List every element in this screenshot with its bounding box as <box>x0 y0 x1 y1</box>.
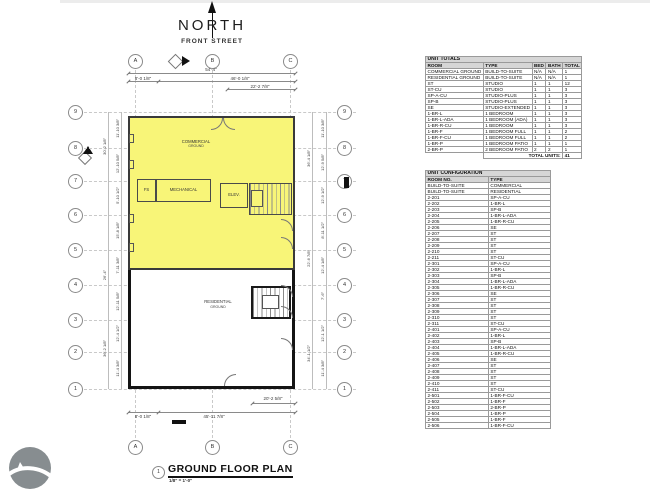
table-cell: 1 BEDROOM (ADA) <box>483 117 532 123</box>
grid-bubble: 6 <box>68 208 83 223</box>
dimension-label: 5'-10 1/2" <box>115 187 120 204</box>
grid-bubble: 5 <box>337 243 352 258</box>
mechanical-room: MECHANICAL <box>156 179 211 202</box>
keynote-marker <box>344 177 349 188</box>
plan-title: GROUND FLOOR PLAN <box>168 463 293 478</box>
dimension-line <box>252 403 295 404</box>
grid-bubble: C <box>283 440 298 455</box>
grid-bubble: 8 <box>337 141 352 156</box>
stair-landing <box>262 295 279 309</box>
wall-pilaster <box>129 160 134 169</box>
residential-room-tag: RESIDENTIAL GROUND <box>196 299 240 310</box>
dimension-line <box>128 73 295 74</box>
dimension-label: 45'-11 7/8" <box>186 414 242 419</box>
grid-bubble: A <box>128 440 143 455</box>
dimension-label: 11'-4 3/8" <box>115 360 120 377</box>
dimension-line <box>108 112 109 389</box>
table-cell: 1 BEDROOM PATIO <box>483 141 532 147</box>
grid-bubble: 1 <box>337 382 352 397</box>
dimension-line <box>128 81 295 82</box>
room-name: ELEV. <box>228 193 240 198</box>
dimension-tick <box>293 410 297 414</box>
drawing-sheet: NORTH FRONT STREET AABBCC998877665544332… <box>0 0 650 488</box>
total-row: TOTAL UNITS:41 <box>426 153 582 159</box>
detail-number-bubble: 1 <box>152 466 165 479</box>
grid-bubble: 2 <box>337 345 352 360</box>
dimension-label: 12'-1 1/2" <box>320 325 325 342</box>
grid-bubble: 4 <box>68 278 83 293</box>
keynote-marker <box>172 420 186 424</box>
grid-bubble: 3 <box>68 313 83 328</box>
grid-line <box>84 112 356 113</box>
grid-bubble: B <box>205 440 220 455</box>
fs-room: FS <box>137 179 156 202</box>
grid-bubble: 1 <box>68 382 83 397</box>
wall-pilaster <box>129 214 134 223</box>
elevator-room: ELEV. <box>220 183 248 208</box>
total-value: 41 <box>563 153 582 159</box>
dimension-line <box>121 112 122 389</box>
dimension-label: 11'-4 3/8" <box>320 360 325 377</box>
grid-bubble: 6 <box>337 208 352 223</box>
dimension-label: 12'-11 5/8" <box>115 292 120 311</box>
grid-bubble: 7 <box>68 174 83 189</box>
total-label: TOTAL UNITS: <box>483 153 562 159</box>
column-header: BATH <box>546 63 563 69</box>
dimension-label: 20'-2 5/8" <box>248 396 298 401</box>
dimension-label: 12'-4 1/2" <box>115 325 120 342</box>
dimension-label: 11'-10 3/8" <box>115 119 120 138</box>
dimension-label: 30'-2 1/8" <box>102 138 107 155</box>
column-header: BED <box>532 63 546 69</box>
dimension-label: 22'-6 7/8" <box>306 250 311 267</box>
dimension-label: 22'-2 7/8" <box>234 84 286 89</box>
dimension-label: 8'-0 1/8" <box>124 414 162 419</box>
dimension-label: 15'-8 1/8" <box>115 222 120 239</box>
grid-bubble: C <box>283 54 298 69</box>
room-sub: GROUND <box>188 144 204 148</box>
dimension-label: 36'-4 1/8" <box>306 150 311 167</box>
dimension-label: 46'-0 1/8" <box>212 76 268 81</box>
table-cell: RESIDENTIAL GROUND <box>426 75 484 81</box>
room-sub: GROUND <box>210 305 226 309</box>
dimension-label: 34'-1 1/2" <box>306 345 311 362</box>
wall-pilaster <box>129 134 134 143</box>
commercial-room-tag: COMMERCIAL GROUND <box>168 138 224 150</box>
grid-bubble: 2 <box>68 345 83 360</box>
unit-totals-table: UNIT TOTALS ROOMTYPEBEDBATHTOTAL COMMERC… <box>425 56 582 159</box>
plan-scale: 1/8" = 1'-0" <box>169 478 192 483</box>
grid-bubble: 4 <box>337 278 352 293</box>
table-cell: STUDIO-EXTENDED <box>483 105 532 111</box>
table-cell: 1 BEDROOM FULL <box>483 129 532 135</box>
dimension-label: 8'-11 1/2" <box>320 222 325 239</box>
dimension-label: 12'-9 1/2" <box>320 187 325 204</box>
room-name: MECHANICAL <box>170 188 197 193</box>
column-header: TOTAL <box>563 63 582 69</box>
dimension-label: 12'-9 5/8" <box>320 154 325 171</box>
table-row: 2-5061-BR-F-CU <box>426 423 551 429</box>
table-cell: 2 BEDROOM PATIO <box>483 147 532 153</box>
grid-bubble: 5 <box>68 243 83 258</box>
dimension-line <box>312 112 313 389</box>
dimension-label: 11'-10 3/8" <box>320 119 325 138</box>
dimension-tick <box>293 401 297 405</box>
dimension-tick <box>293 79 297 83</box>
dimension-label: 7'-6" <box>320 292 325 300</box>
grid-line <box>84 389 356 390</box>
dimension-label: 8'-0 1/8" <box>124 76 162 81</box>
dimension-label: 26'-4" <box>102 270 107 280</box>
grid-bubble: A <box>128 54 143 69</box>
dimension-label: 7'-11 3/8" <box>115 257 120 274</box>
dimension-tick <box>293 87 297 91</box>
grid-bubble: 9 <box>337 105 352 120</box>
dimension-line <box>227 89 295 90</box>
dimension-label: 54'-4" <box>186 67 236 72</box>
dimension-label: 12'-4 1/8" <box>320 257 325 274</box>
room-name: FS <box>144 188 149 193</box>
grid-bubble: 3 <box>337 313 352 328</box>
table-cell: 1-BR-F-CU <box>488 423 550 429</box>
dimension-label: 12'-10 5/8" <box>115 154 120 173</box>
table-cell: COMMERCIAL GROUND <box>426 69 484 75</box>
table-cell: 1 BEDROOM FULL <box>483 135 532 141</box>
dimension-tick <box>293 71 297 75</box>
stair-landing <box>251 190 263 207</box>
dimension-line <box>128 412 295 413</box>
grid-bubble: 9 <box>68 105 83 120</box>
table-cell: 2-506 <box>426 423 489 429</box>
firm-logo <box>6 445 56 491</box>
dimension-label: 36'-2 1/8" <box>102 340 107 357</box>
unit-configuration-table: UNIT CONFIGURATION ROOM NO.TYPE BUILD-TO… <box>425 170 551 429</box>
wall-pilaster <box>129 243 134 252</box>
grid-bubble: 8 <box>68 141 83 156</box>
dimension-line <box>326 112 327 389</box>
